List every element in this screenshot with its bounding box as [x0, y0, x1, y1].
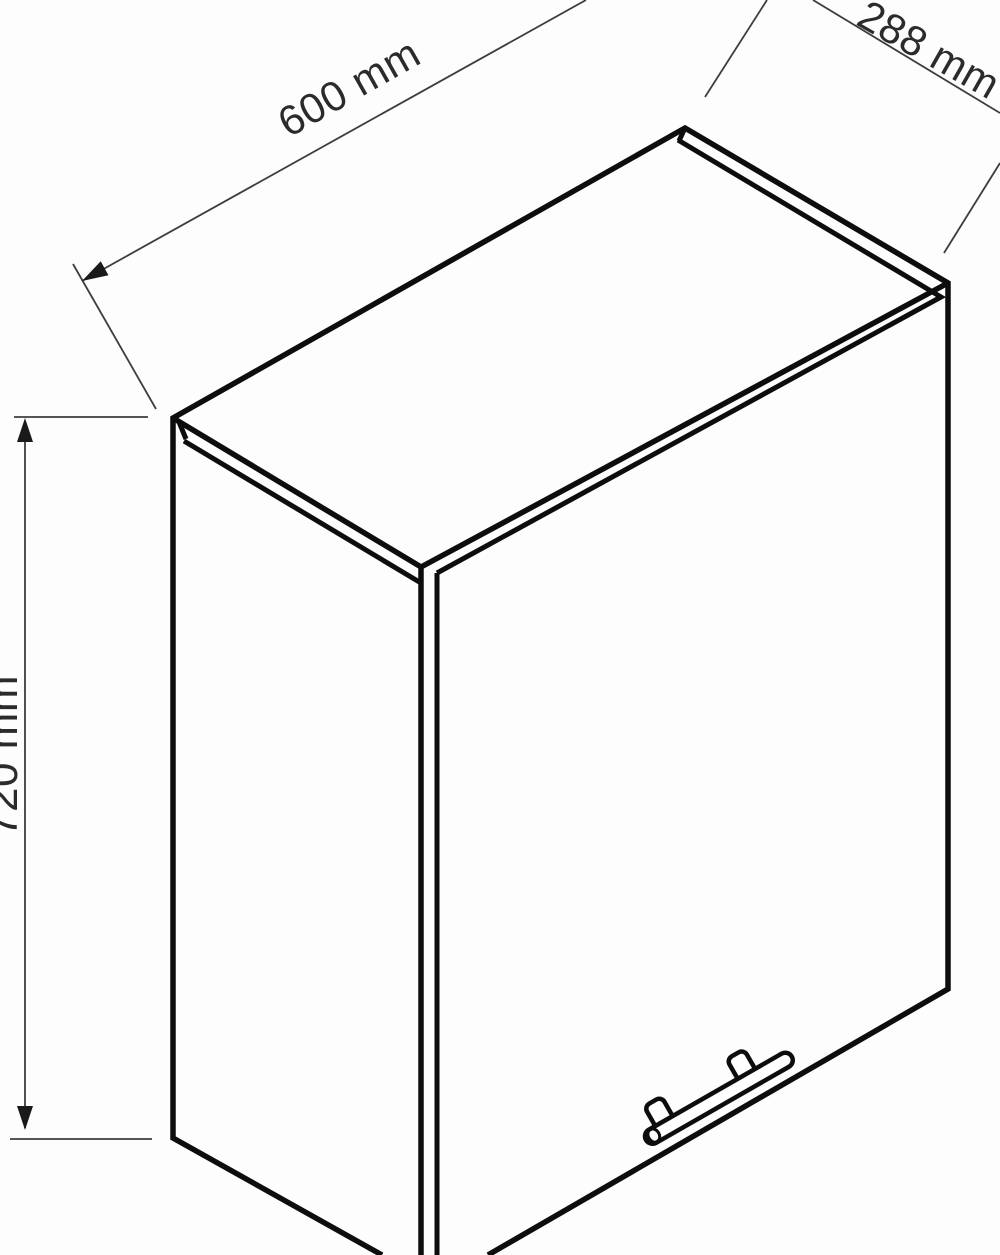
- height-dimension-label: 720 mm: [0, 675, 27, 837]
- width-extension-line-left: [73, 264, 156, 409]
- depth-extension-line-right: [944, 163, 1000, 253]
- depth-dimension-label: 288 mm: [850, 0, 1000, 108]
- cabinet-dimension-drawing: 600 mm 288 mm 720 mm: [0, 0, 1000, 1255]
- height-arrow-bottom: [17, 1106, 33, 1130]
- height-arrow-top: [17, 418, 33, 442]
- width-arrow: [82, 261, 109, 281]
- width-dimension-label: 600 mm: [270, 29, 428, 146]
- cabinet-inner-edges: [179, 130, 941, 1255]
- width-dimension-line: [82, 0, 586, 281]
- dimension-annotations: [10, 0, 1000, 1139]
- dimension-arrowheads: [17, 261, 109, 1130]
- handle-bar: [642, 1050, 795, 1147]
- cabinet-top-face-front-edges: [173, 283, 948, 1255]
- cabinet-outline: [173, 128, 948, 1255]
- drawing-page: 600 mm 288 mm 720 mm: [0, 0, 1000, 1255]
- dimension-labels: 600 mm 288 mm 720 mm: [0, 0, 1000, 837]
- cabinet-body-outline: [173, 128, 948, 1255]
- depth-extension-line-left: [705, 0, 767, 97]
